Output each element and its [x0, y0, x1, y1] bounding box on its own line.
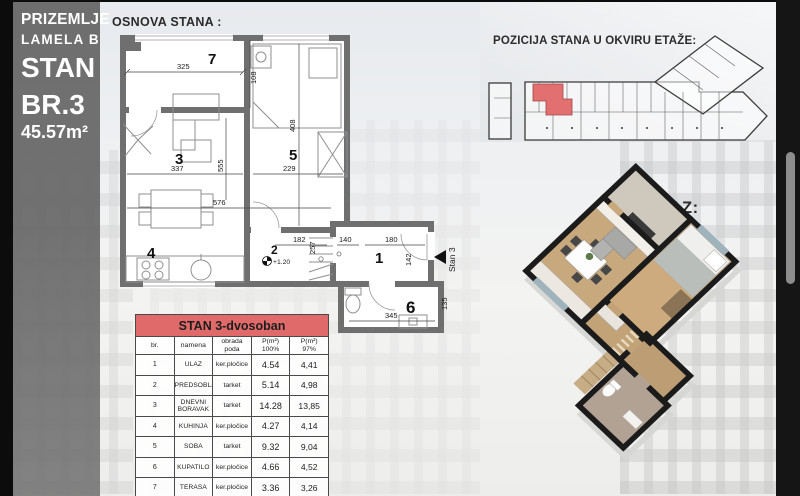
unit-label-line2: BR.3: [21, 89, 85, 121]
floor-label: PRIZEMLJE: [21, 11, 110, 29]
section-title-floor-plan: OSNOVA STANA :: [112, 15, 222, 29]
render-apartment: [482, 167, 778, 448]
position-plan-drawing: [487, 28, 777, 152]
svg-text:142: 142: [404, 253, 413, 266]
svg-text:345: 345: [385, 311, 398, 320]
annex-building: [489, 83, 511, 139]
table-row: 3DNEVNI BORAVAKtarket14.2813,85: [136, 396, 329, 417]
floor-plan-drawing: 325 108 337 229 408 555 576 182 257 140 …: [113, 32, 475, 332]
col-header-p97: P(m²)97%: [290, 337, 329, 355]
render-3d-drawing: [492, 152, 784, 496]
svg-text:6: 6: [406, 298, 415, 317]
svg-text:229: 229: [283, 164, 296, 173]
unit-area-label: 45.57m²: [21, 122, 88, 143]
lamela-label: LAMELA B: [21, 32, 100, 47]
svg-text:5: 5: [289, 147, 297, 164]
unit-label-line1: STAN: [21, 52, 95, 84]
table-row: 4KUHINJAker.pločice4.274,14: [136, 416, 329, 437]
table-title: STAN 3-dvosoban: [136, 315, 329, 337]
svg-text:325: 325: [177, 62, 190, 71]
col-header-namena: namena: [174, 337, 213, 355]
table-row: 6KUPATILOker.pločice4.664,52: [136, 457, 329, 478]
svg-text:108: 108: [249, 71, 258, 84]
svg-text:408: 408: [288, 119, 297, 132]
svg-text:555: 555: [216, 159, 225, 172]
table-row: 5SOBAtarket9.329,04: [136, 437, 329, 458]
svg-text:140: 140: [339, 235, 352, 244]
svg-text:1: 1: [375, 250, 383, 267]
svg-text:180: 180: [385, 235, 398, 244]
svg-text:182: 182: [293, 235, 306, 244]
sidebar: PRIZEMLJE LAMELA B STAN BR.3 45.57m²: [13, 2, 100, 496]
document-page: PRIZEMLJE LAMELA B STAN BR.3 45.57m² OSN…: [0, 0, 800, 496]
svg-text:3: 3: [175, 151, 183, 168]
svg-text:2: 2: [271, 243, 278, 257]
table-row: 2PREDSOBLJEtarket5.144,98: [136, 375, 329, 396]
table-row: 7TERASAker.pločice3.363,26: [136, 478, 329, 496]
col-header-p100: P(m²)100%: [251, 337, 290, 355]
col-header-br: br.: [136, 337, 175, 355]
svg-text:4: 4: [147, 245, 156, 262]
entrance-marker: Stan 3: [434, 247, 457, 272]
scrollbar-thumb[interactable]: [786, 152, 795, 284]
svg-text:Stan 3: Stan 3: [447, 247, 457, 272]
room-area-table: STAN 3-dvosoban br. namena obrada poda P…: [135, 314, 329, 496]
svg-text:135: 135: [440, 297, 449, 310]
table-row: 1ULAZker.pločice4.544,41: [136, 355, 329, 376]
col-header-obrada: obrada poda: [213, 337, 252, 355]
svg-text:7: 7: [208, 51, 216, 68]
svg-text:257: 257: [308, 241, 317, 254]
svg-text:576: 576: [213, 198, 226, 207]
table-header-row: br. namena obrada poda P(m²)100% P(m²)97…: [136, 337, 329, 355]
svg-text:+1.20: +1.20: [273, 259, 290, 266]
